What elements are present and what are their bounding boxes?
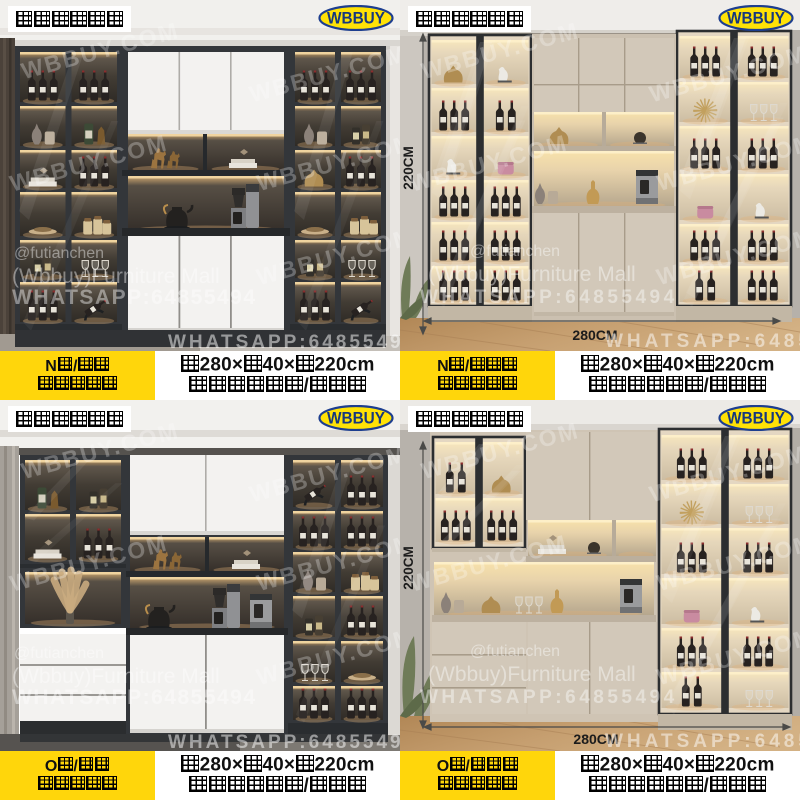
svg-text:WHATSAPP:64855494: WHATSAPP:64855494 xyxy=(420,687,678,708)
svg-text:WHATSAPP:64855494: WHATSAPP:64855494 xyxy=(12,686,257,709)
svg-text:(Wbbuy)Furniture Mall: (Wbbuy)Furniture Mall xyxy=(428,663,636,686)
svg-text:@futianchen: @futianchen xyxy=(14,645,104,662)
svg-text:WHATSAPP:64855494: WHATSAPP:64855494 xyxy=(168,732,400,751)
svg-text:@futianchen: @futianchen xyxy=(470,643,560,660)
svg-text:@futianchen: @futianchen xyxy=(470,243,560,260)
svg-text:WBBUY: WBBUY xyxy=(727,10,785,28)
svg-text:WBBUY: WBBUY xyxy=(327,410,385,428)
svg-text:WHATSAPP:64855494: WHATSAPP:64855494 xyxy=(605,331,800,351)
svg-text:WHATSAPP:64855494: WHATSAPP:64855494 xyxy=(420,287,678,308)
svg-text:(Wbbuy)Furniture Mall: (Wbbuy)Furniture Mall xyxy=(12,265,220,288)
svg-text:(Wbbuy)Furniture Mall: (Wbbuy)Furniture Mall xyxy=(428,263,636,286)
svg-text:WBBUY: WBBUY xyxy=(727,410,785,428)
svg-text:WHATSAPP:64855494: WHATSAPP:64855494 xyxy=(605,731,800,751)
svg-text:WBBUY: WBBUY xyxy=(327,10,385,28)
svg-text:WHATSAPP:64855494: WHATSAPP:64855494 xyxy=(12,286,257,309)
svg-text:@futianchen: @futianchen xyxy=(14,245,104,262)
svg-text:WHATSAPP:64855494: WHATSAPP:64855494 xyxy=(168,332,400,351)
svg-text:(Wbbuy)Furniture Mall: (Wbbuy)Furniture Mall xyxy=(12,665,220,688)
